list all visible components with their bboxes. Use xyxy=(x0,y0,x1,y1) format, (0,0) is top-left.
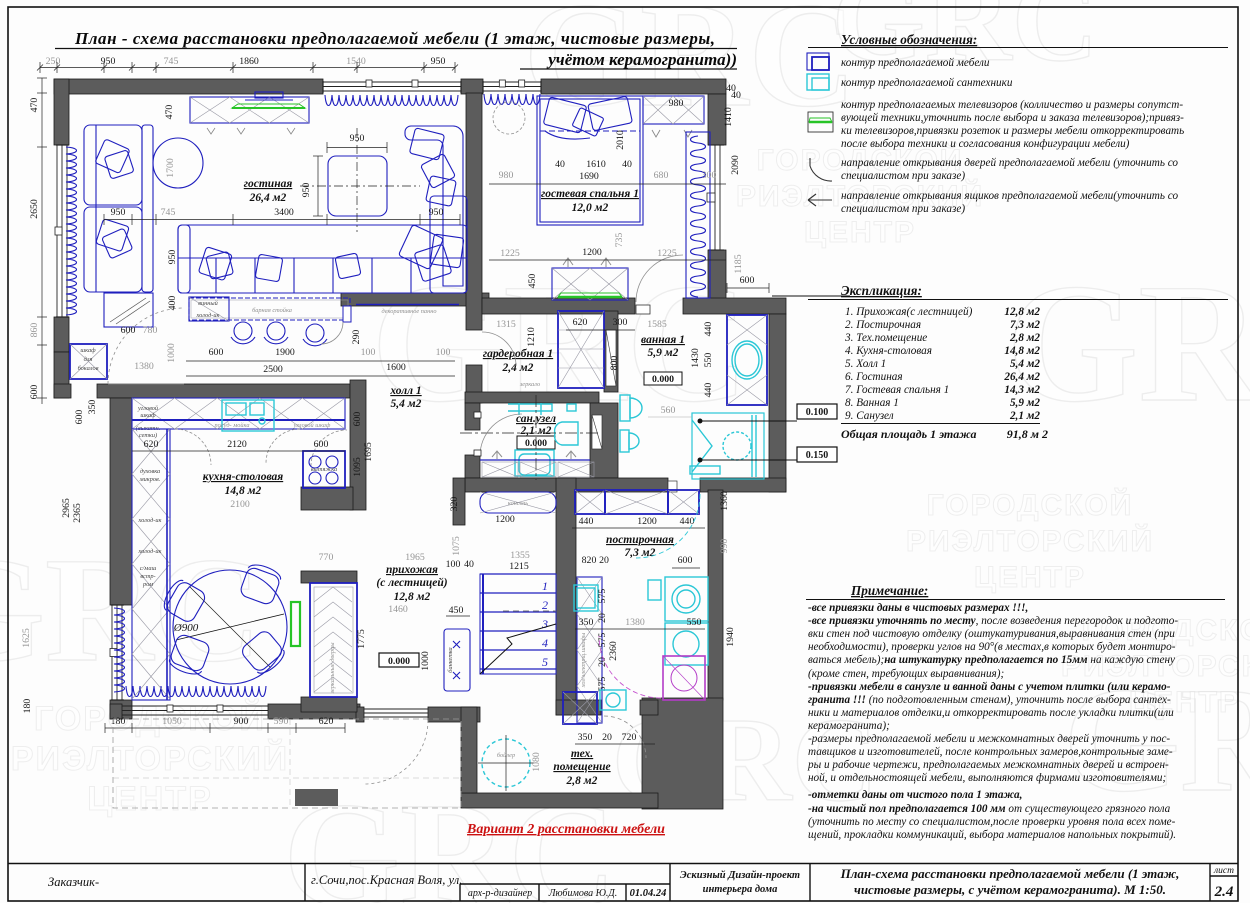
svg-text:2650: 2650 xyxy=(29,199,40,219)
svg-text:8. Ванная 1: 8. Ванная 1 xyxy=(845,397,899,409)
svg-text:холод-ик: холод-ик xyxy=(196,312,220,319)
svg-text:5. Холл 1: 5. Холл 1 xyxy=(845,358,886,370)
svg-text:консоль: консоль xyxy=(508,500,528,507)
svg-text:2090: 2090 xyxy=(730,155,741,175)
svg-text:ваться мебель);на штукатурку п: ваться мебель);на штукатурку предполагае… xyxy=(808,654,1175,666)
svg-text:1360: 1360 xyxy=(719,491,730,511)
svg-text:1430: 1430 xyxy=(690,348,701,368)
svg-text:6. Гостиная: 6. Гостиная xyxy=(845,371,903,383)
svg-text:винный: винный xyxy=(198,300,218,307)
svg-text:40: 40 xyxy=(622,159,632,170)
svg-text:440: 440 xyxy=(703,322,714,337)
svg-text:после выбора техники и согласо: после выбора техники и согласования конф… xyxy=(841,138,1130,150)
svg-text:12,8 м2: 12,8 м2 xyxy=(1004,306,1040,318)
svg-text:холл 1: холл 1 xyxy=(389,385,421,397)
svg-text:550: 550 xyxy=(687,617,702,628)
svg-text:990: 990 xyxy=(719,539,730,554)
svg-text:1200: 1200 xyxy=(637,516,657,527)
svg-text:Эскизный Дизайн-проект: Эскизный Дизайн-проект xyxy=(680,870,800,881)
svg-text:350: 350 xyxy=(87,400,98,415)
svg-text:400: 400 xyxy=(167,296,178,311)
svg-text:1200: 1200 xyxy=(495,514,515,525)
svg-text:01.04.24: 01.04.24 xyxy=(630,888,667,899)
svg-text:620: 620 xyxy=(144,439,159,450)
svg-text:ГОРОДСКОЙ: ГОРОДСКОЙ xyxy=(34,699,266,738)
svg-text:Заказчик-: Заказчик- xyxy=(48,875,99,889)
svg-text:для: для xyxy=(84,356,93,363)
svg-text:керамогранита);: керамогранита); xyxy=(808,720,890,732)
svg-text:тех.: тех. xyxy=(571,748,593,760)
svg-text:0.150: 0.150 xyxy=(806,450,829,461)
svg-text:-все привязки уточнять по мест: -все привязки уточнять по месту, после в… xyxy=(808,615,1178,627)
svg-text:ЦЕНТР: ЦЕНТР xyxy=(87,780,213,818)
svg-text:банкетка: банкетка xyxy=(447,647,454,672)
svg-text:декоративное панно: декоративное панно xyxy=(382,308,437,315)
svg-text:2,8 м2: 2,8 м2 xyxy=(1009,332,1040,344)
svg-text:прихожая: прихожая xyxy=(386,564,438,576)
svg-text:3. Тех.помещение: 3. Тех.помещение xyxy=(844,332,927,344)
svg-text:350: 350 xyxy=(579,617,594,628)
svg-text:5: 5 xyxy=(542,655,548,669)
svg-text:600: 600 xyxy=(209,347,224,358)
svg-text:9. Санузел: 9. Санузел xyxy=(845,410,894,422)
svg-text:20: 20 xyxy=(599,555,609,566)
svg-text:шкаф: шкаф xyxy=(80,347,96,354)
svg-text:ванная 1: ванная 1 xyxy=(641,334,685,346)
svg-text:2965: 2965 xyxy=(61,498,72,518)
svg-text:1585: 1585 xyxy=(647,319,667,330)
svg-text:с/маш: с/маш xyxy=(140,565,157,572)
svg-text:600: 600 xyxy=(678,555,693,566)
svg-text:320: 320 xyxy=(449,497,460,512)
svg-text:1215: 1215 xyxy=(509,561,529,572)
svg-text:1695: 1695 xyxy=(363,442,374,462)
svg-text:20: 20 xyxy=(602,732,612,743)
svg-text:щений, прокладки коммуникаций: щений, прокладки коммуникаций, выбора ма… xyxy=(808,829,1176,841)
svg-text:1380: 1380 xyxy=(625,617,645,628)
svg-text:Условные обозначения:: Условные обозначения: xyxy=(841,32,977,47)
svg-text:шкаф: шкаф xyxy=(140,412,156,419)
svg-text:1: 1 xyxy=(542,579,548,593)
svg-text:2. Постирочная: 2. Постирочная xyxy=(845,319,921,331)
svg-text:950: 950 xyxy=(429,207,444,218)
svg-text:-размеры предполагаемой мебел: -размеры предполагаемой мебели и межкомн… xyxy=(808,733,1170,745)
svg-text:1185: 1185 xyxy=(733,254,744,273)
svg-text:бойлер: бойлер xyxy=(497,752,515,759)
svg-text:1095: 1095 xyxy=(352,457,363,477)
svg-text:820: 820 xyxy=(582,555,597,566)
svg-text:3400: 3400 xyxy=(274,207,294,218)
svg-text:ЦЕНТР: ЦЕНТР xyxy=(974,561,1086,594)
svg-text:зеркальные дверцы: зеркальные дверцы xyxy=(329,642,336,695)
svg-text:-все привязки даны в чистовых: -все привязки даны в чистовых размерах !… xyxy=(808,602,1028,614)
svg-text:440: 440 xyxy=(703,383,714,398)
svg-text:470: 470 xyxy=(29,98,40,113)
svg-text:900: 900 xyxy=(234,716,249,727)
svg-text:духовка: духовка xyxy=(140,468,160,475)
svg-text:1625: 1625 xyxy=(21,628,32,648)
svg-text:780: 780 xyxy=(143,325,158,336)
svg-text:1610: 1610 xyxy=(586,159,606,170)
svg-text:встр-: встр- xyxy=(140,573,155,580)
svg-text:4. Кухня-столовая: 4. Кухня-столовая xyxy=(845,345,932,357)
svg-text:950: 950 xyxy=(301,183,312,198)
svg-text:-на чистый пол предполагаетс: -на чистый пол предполагается 100 мм от … xyxy=(808,803,1171,815)
svg-text:г.Сочи,пос.Красная Воля, ул.: г.Сочи,пос.Красная Воля, ул. xyxy=(311,873,462,887)
svg-text:1900: 1900 xyxy=(275,347,295,358)
svg-text:575: 575 xyxy=(597,633,608,648)
svg-text:620: 620 xyxy=(319,716,334,727)
svg-text:контур предполагаемой сантехни: контур предполагаемой сантехники xyxy=(841,77,1013,89)
svg-text:учётом керамогранита)): учётом керамогранита)) xyxy=(546,50,737,69)
svg-text:арх-р-дизайнер: арх-р-дизайнер xyxy=(468,888,532,899)
svg-text:470: 470 xyxy=(164,105,175,120)
svg-text:-привязки мебели в санузле: -привязки мебели в санузле и ванной даны… xyxy=(808,681,1171,693)
svg-text:Любимова Ю.Д.: Любимова Ю.Д. xyxy=(548,888,618,899)
svg-text:сетки): сетки) xyxy=(139,432,157,439)
svg-text:4: 4 xyxy=(542,636,548,650)
svg-text:680: 680 xyxy=(654,170,669,181)
svg-text:интерьера дома: интерьера дома xyxy=(703,884,778,895)
svg-text:7. Гостевая спальня 1: 7. Гостевая спальня 1 xyxy=(845,384,949,396)
svg-text:100: 100 xyxy=(361,347,376,358)
svg-text:1380: 1380 xyxy=(134,361,154,372)
svg-text:специалистом при заказе): специалистом при заказе) xyxy=(841,203,965,215)
svg-text:гостевая спальня 1: гостевая спальня 1 xyxy=(541,188,639,200)
svg-text:2,1 м2: 2,1 м2 xyxy=(1009,410,1040,422)
svg-text:контур предполагаемой мебели: контур предполагаемой мебели xyxy=(841,57,990,69)
svg-text:7,3 м2: 7,3 м2 xyxy=(625,547,656,559)
svg-text:5,9 м2: 5,9 м2 xyxy=(648,347,679,359)
svg-text:вки стен под чистовую отделку: вки стен под чистовую отделку (оштукатур… xyxy=(808,628,1175,640)
svg-text:1860: 1860 xyxy=(239,56,259,67)
svg-text:1410: 1410 xyxy=(723,107,734,127)
svg-text:холод-ик: холод-ик xyxy=(138,548,162,555)
svg-text:бокалов: бокалов xyxy=(78,365,99,372)
svg-text:вытяжка: вытяжка xyxy=(311,466,337,473)
svg-text:600: 600 xyxy=(352,412,363,427)
svg-text:575: 575 xyxy=(597,589,608,604)
svg-text:770: 770 xyxy=(319,552,334,563)
svg-text:600: 600 xyxy=(74,410,85,425)
svg-text:зеркало: зеркало xyxy=(519,381,540,388)
svg-text:600: 600 xyxy=(314,439,329,450)
svg-text:План - схема расстановки пре: План - схема расстановки предполагаемой … xyxy=(74,29,715,48)
svg-text:3: 3 xyxy=(541,617,548,631)
svg-text:ки телевизоров,привязки розето: ки телевизоров,привязки розеток и размер… xyxy=(841,125,1184,137)
svg-text:1315: 1315 xyxy=(496,319,516,330)
svg-text:микров.: микров. xyxy=(139,476,161,483)
svg-text:40: 40 xyxy=(731,90,741,101)
svg-text:12,0 м2: 12,0 м2 xyxy=(572,202,609,214)
svg-text:2,1 м2: 2,1 м2 xyxy=(520,425,552,437)
svg-text:1000: 1000 xyxy=(420,651,431,671)
svg-text:14,3 м2: 14,3 м2 xyxy=(1004,384,1040,396)
svg-text:20: 20 xyxy=(597,613,608,623)
svg-text:14,8 м2: 14,8 м2 xyxy=(1004,345,1040,357)
svg-text:600: 600 xyxy=(29,385,40,400)
svg-text:26,4 м2: 26,4 м2 xyxy=(249,192,287,204)
svg-text:2365: 2365 xyxy=(72,503,83,523)
svg-text:ной, и отдельностоящей мебели,: ной, и отдельностоящей мебели, выполняют… xyxy=(808,772,1166,784)
svg-text:800: 800 xyxy=(609,356,620,371)
svg-text:2,4 м2: 2,4 м2 xyxy=(502,362,534,374)
svg-text:ЦЕНТР: ЦЕНТР xyxy=(804,216,916,249)
svg-text:600: 600 xyxy=(121,325,136,336)
svg-text:0.000: 0.000 xyxy=(652,374,674,385)
svg-text:450: 450 xyxy=(449,605,464,616)
svg-text:посуд- мойка: посуд- мойка xyxy=(215,422,250,429)
svg-text:100: 100 xyxy=(446,559,461,570)
svg-text:1000: 1000 xyxy=(166,343,177,363)
svg-text:помещение: помещение xyxy=(553,761,610,773)
svg-text:РИЭЛТОРСКИЙ: РИЭЛТОРСКИЙ xyxy=(906,524,1154,558)
svg-text:14,8 м2: 14,8 м2 xyxy=(225,485,262,497)
svg-text:План-схема расстановки предпол: План-схема расстановки предполагаемой ме… xyxy=(840,866,1180,881)
svg-text:300: 300 xyxy=(702,170,717,181)
svg-text:26,4 м2: 26,4 м2 xyxy=(1003,371,1040,383)
svg-text:угловой шкаф: угловой шкаф xyxy=(293,422,331,429)
svg-text:специалистом при заказе): специалистом при заказе) xyxy=(841,170,965,182)
svg-text:950: 950 xyxy=(350,133,365,144)
svg-text:ГОРОДСКОЙ: ГОРОДСКОЙ xyxy=(927,488,1134,522)
svg-text:735: 735 xyxy=(614,233,625,248)
svg-text:1200: 1200 xyxy=(582,247,602,258)
svg-text:ром: ром xyxy=(142,581,153,588)
svg-text:хоз/электрщ.шкафы: хоз/электрщ.шкафы xyxy=(580,632,587,688)
svg-text:950: 950 xyxy=(431,56,446,67)
svg-text:2,8 м2: 2,8 м2 xyxy=(566,775,598,787)
svg-text:ры и рабочие чертежи, предпол: ры и рабочие чертежи, предполагаемых меж… xyxy=(807,759,1169,771)
svg-text:560: 560 xyxy=(661,405,676,416)
svg-text:1225: 1225 xyxy=(657,248,677,259)
svg-text:1940: 1940 xyxy=(725,627,736,647)
svg-text:720: 720 xyxy=(622,732,637,743)
svg-text:1540: 1540 xyxy=(346,56,366,67)
svg-text:1965: 1965 xyxy=(405,552,425,563)
svg-text:лист: лист xyxy=(1213,866,1234,876)
svg-text:Экспликация:: Экспликация: xyxy=(841,283,922,298)
svg-text:чистовые размеры, с учётом кер: чистовые размеры, с учётом керамогранита… xyxy=(854,882,1166,897)
svg-text:1460: 1460 xyxy=(388,604,408,615)
svg-text:2.4: 2.4 xyxy=(1214,884,1234,900)
svg-text:вующей техники,уточнить после: вующей техники,уточнить после выбора и з… xyxy=(841,112,1184,124)
svg-text:440: 440 xyxy=(579,516,594,527)
svg-text:2360: 2360 xyxy=(608,641,619,661)
svg-text:направление открывания ящико: направление открывания ящиков предполага… xyxy=(841,190,1178,202)
svg-text:0.100: 0.100 xyxy=(806,407,829,418)
svg-text:GRC: GRC xyxy=(1006,249,1250,437)
svg-text:кухня-столовая: кухня-столовая xyxy=(203,471,283,483)
svg-text:гардеробная 1: гардеробная 1 xyxy=(483,348,553,360)
svg-text:Вариант 2 расстановки мебели: Вариант 2 расстановки мебели xyxy=(466,822,665,837)
svg-text:1355: 1355 xyxy=(510,550,530,561)
svg-text:2120: 2120 xyxy=(227,439,247,450)
svg-text:5,9 м2: 5,9 м2 xyxy=(1010,397,1040,409)
svg-text:980: 980 xyxy=(499,170,514,181)
svg-text:тавщиков и изготовителей, посл: тавщиков и изготовителей, после контроль… xyxy=(808,746,1173,758)
svg-text:ники и материалов отделки,и от: ники и материалов отделки,и откорректиро… xyxy=(808,707,1174,719)
svg-text:950: 950 xyxy=(167,250,178,265)
svg-text:12,8 м2: 12,8 м2 xyxy=(394,591,431,603)
svg-text:40: 40 xyxy=(464,559,474,570)
svg-text:1. Прихожая(с лестницей): 1. Прихожая(с лестницей) xyxy=(845,306,973,318)
svg-text:620: 620 xyxy=(573,317,588,328)
svg-text:40: 40 xyxy=(555,159,565,170)
svg-text:1075: 1075 xyxy=(451,536,462,556)
svg-text:направление открывания двере: направление открывания дверей предполага… xyxy=(841,157,1178,169)
svg-text:1050: 1050 xyxy=(162,716,182,727)
svg-text:1210: 1210 xyxy=(526,327,537,347)
svg-text:постирочная: постирочная xyxy=(606,534,674,546)
svg-text:(кроме стен, требующих выравни: (кроме стен, требующих выравнивания); xyxy=(808,668,1004,680)
svg-text:290: 290 xyxy=(351,330,362,345)
svg-text:1080: 1080 xyxy=(531,752,542,772)
svg-text:Примечание:: Примечание: xyxy=(850,583,928,598)
svg-text:745: 745 xyxy=(164,56,179,67)
svg-text:барная стойка: барная стойка xyxy=(252,307,292,314)
svg-text:5,4 м2: 5,4 м2 xyxy=(391,398,422,410)
svg-text:гранита !!! (по подготовленны: гранита !!! (по подготовленным стенам), … xyxy=(808,694,1171,706)
svg-text:550: 550 xyxy=(703,353,714,368)
svg-text:950: 950 xyxy=(101,56,116,67)
svg-text:180: 180 xyxy=(22,699,33,714)
svg-text:-отметки даны от чистого пола: -отметки даны от чистого пола 1 этажа, xyxy=(808,789,1022,801)
svg-text:2500: 2500 xyxy=(263,364,283,375)
svg-text:7,3 м2: 7,3 м2 xyxy=(1010,319,1040,331)
svg-text:угловой: угловой xyxy=(137,405,159,412)
svg-text:РИЭЛТОРСКИЙ: РИЭЛТОРСКИЙ xyxy=(11,739,289,778)
svg-text:1775: 1775 xyxy=(356,629,367,649)
svg-text:860: 860 xyxy=(29,323,40,338)
svg-text:2: 2 xyxy=(542,598,548,612)
svg-text:гостиная: гостиная xyxy=(244,178,293,190)
svg-text:100: 100 xyxy=(436,347,451,358)
svg-text:холод-ик: холод-ик xyxy=(138,517,162,524)
svg-text:1225: 1225 xyxy=(500,248,520,259)
svg-text:2100: 2100 xyxy=(230,499,250,510)
svg-text:(с лестницей): (с лестницей) xyxy=(376,576,447,589)
svg-text:1690: 1690 xyxy=(579,171,599,182)
svg-text:250: 250 xyxy=(46,56,61,67)
svg-text:1700: 1700 xyxy=(165,158,176,178)
svg-text:Ø900: Ø900 xyxy=(173,622,199,634)
svg-text:350: 350 xyxy=(578,732,593,743)
svg-text:(уточнить по месту со специали: (уточнить по месту со специалистом,после… xyxy=(808,816,1176,828)
svg-text:2010: 2010 xyxy=(615,130,626,150)
svg-text:745: 745 xyxy=(161,207,176,218)
svg-text:контур предполагаемых телевизо: контур предполагаемых телевизоров (колли… xyxy=(841,99,1183,111)
svg-text:950: 950 xyxy=(111,207,126,218)
svg-text:300: 300 xyxy=(613,317,628,328)
svg-text:5,4 м2: 5,4 м2 xyxy=(1010,358,1040,370)
svg-text:450: 450 xyxy=(527,274,538,289)
svg-text:Общая площадь 1 этажа: Общая площадь 1 этажа xyxy=(841,427,977,441)
svg-text:590: 590 xyxy=(274,716,289,727)
svg-text:91,8 м 2: 91,8 м 2 xyxy=(1007,427,1048,441)
svg-text:0.000: 0.000 xyxy=(388,656,410,667)
svg-text:980: 980 xyxy=(669,98,684,109)
svg-text:1600: 1600 xyxy=(386,362,406,373)
svg-text:600: 600 xyxy=(740,275,755,286)
svg-text:необходимости), проверки углов: необходимости), проверки углов на 90°(в … xyxy=(808,641,1176,653)
svg-text:575: 575 xyxy=(597,677,608,692)
